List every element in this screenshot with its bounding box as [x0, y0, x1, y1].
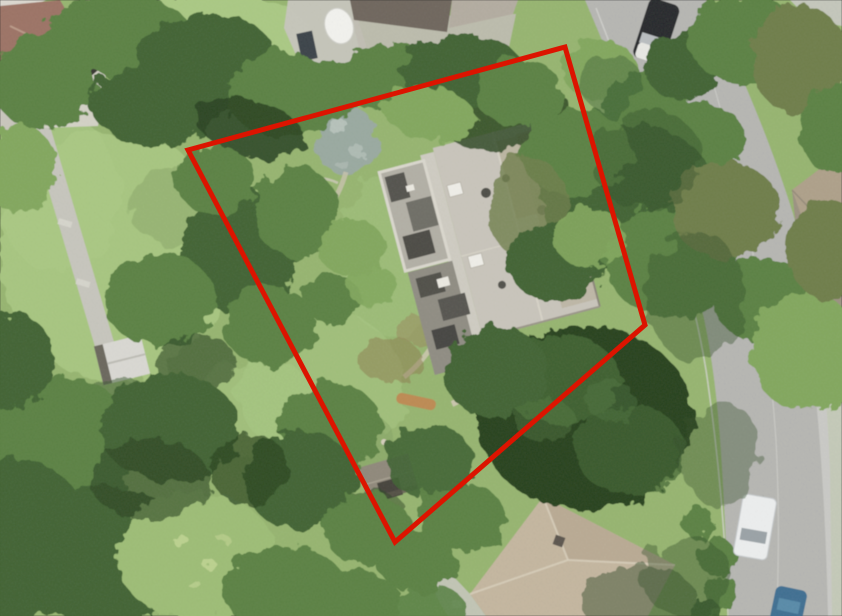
- photo-grain: [0, 0, 842, 616]
- photo-layers: [0, 0, 842, 616]
- aerial-photo: [0, 0, 842, 616]
- aerial-photo-view: [0, 0, 842, 616]
